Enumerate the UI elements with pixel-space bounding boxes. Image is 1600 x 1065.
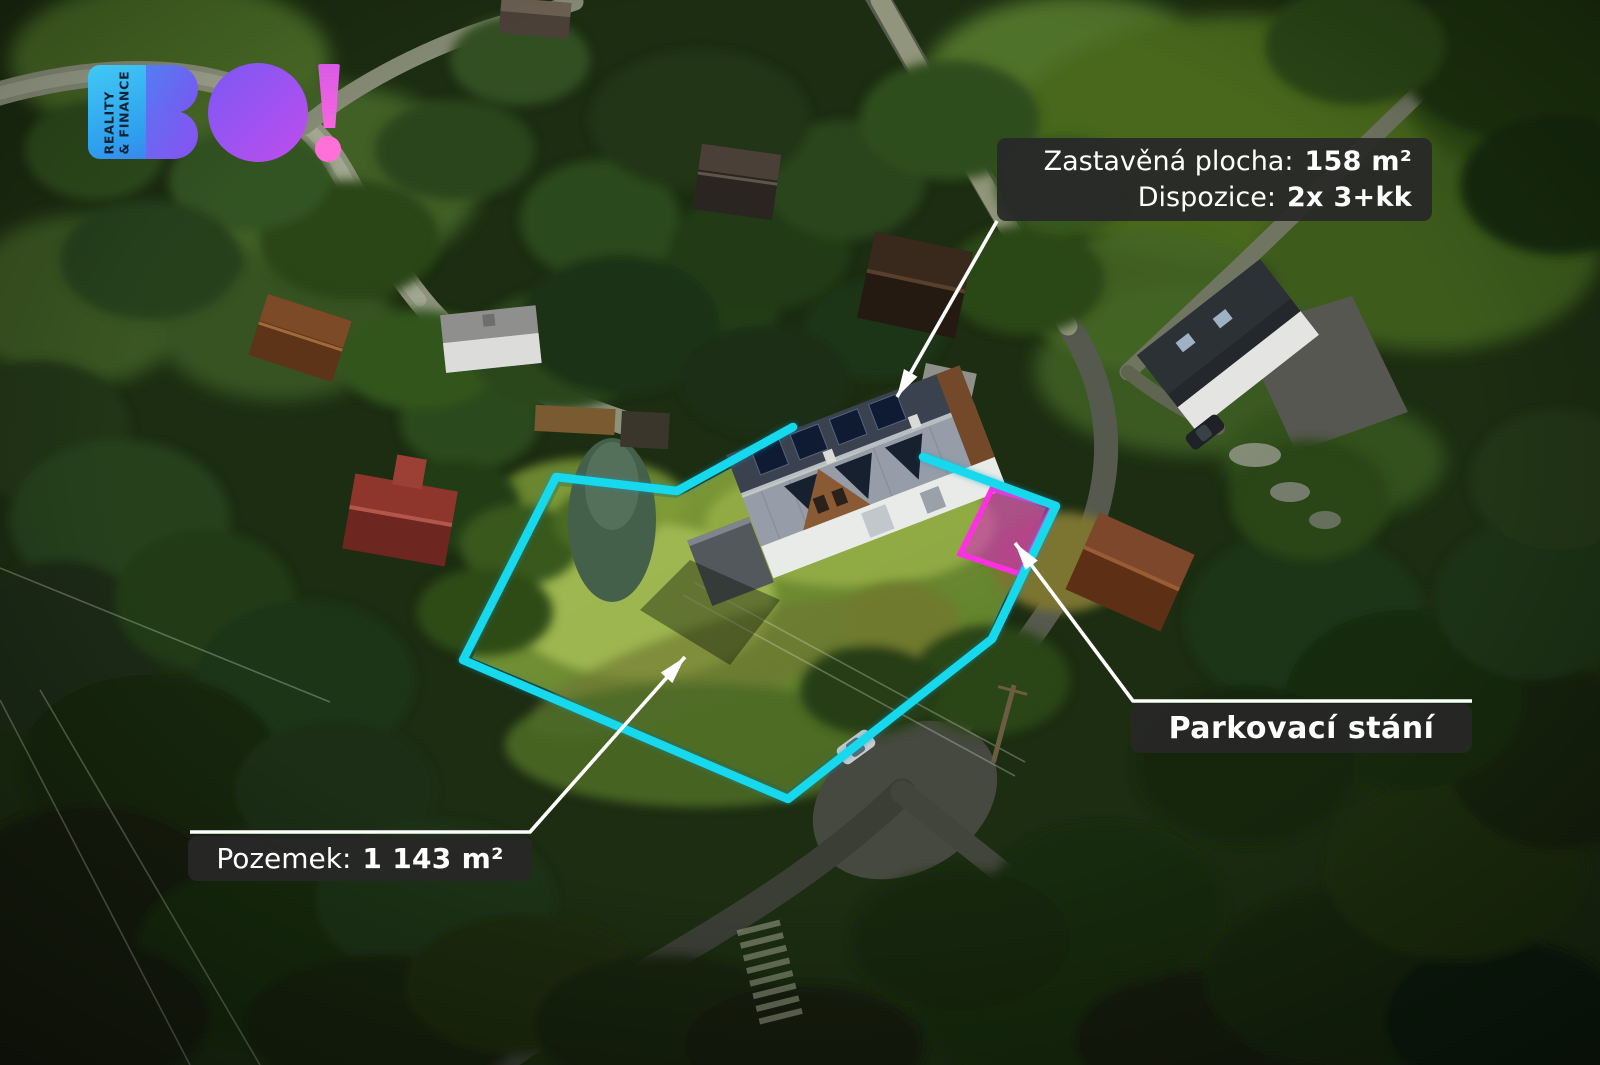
built-area-caption: Zastavěná plocha: [1044,146,1294,177]
logo-letter-o [208,63,308,162]
logo-tagline: REALITY & FINANCE [103,63,132,155]
built-area-label: Zastavěná plocha:158 m² Dispozice:2x 3+k… [997,138,1432,221]
plot-caption: Pozemek: [216,842,351,875]
built-area-value: 158 m² [1304,146,1412,177]
disposition-caption: Dispozice: [1138,182,1276,213]
plot-value: 1 143 m² [362,842,503,875]
real-estate-aerial-annotation: Zastavěná plocha:158 m² Dispozice:2x 3+k… [0,0,1600,1065]
leader-built-area [897,221,997,397]
tagline-line-1: REALITY [103,63,118,155]
built-area-row: Zastavěná plocha:158 m² [1044,144,1412,180]
parking-label: Parkovací stání [1131,704,1472,753]
plot-area-label: Pozemek:1 143 m² [188,836,532,881]
leader-parking [1015,543,1472,701]
leader-plot [190,657,685,832]
property-boundary [463,427,1056,799]
logo-exclamation-dot [315,136,341,162]
parking-caption: Parkovací stání [1169,711,1435,746]
disposition-row: Dispozice:2x 3+kk [1138,180,1412,216]
disposition-value: 2x 3+kk [1287,182,1412,213]
brand-logo: BO! REALITY & FINANCE [88,62,330,162]
tagline-line-2: & FINANCE [117,63,132,155]
